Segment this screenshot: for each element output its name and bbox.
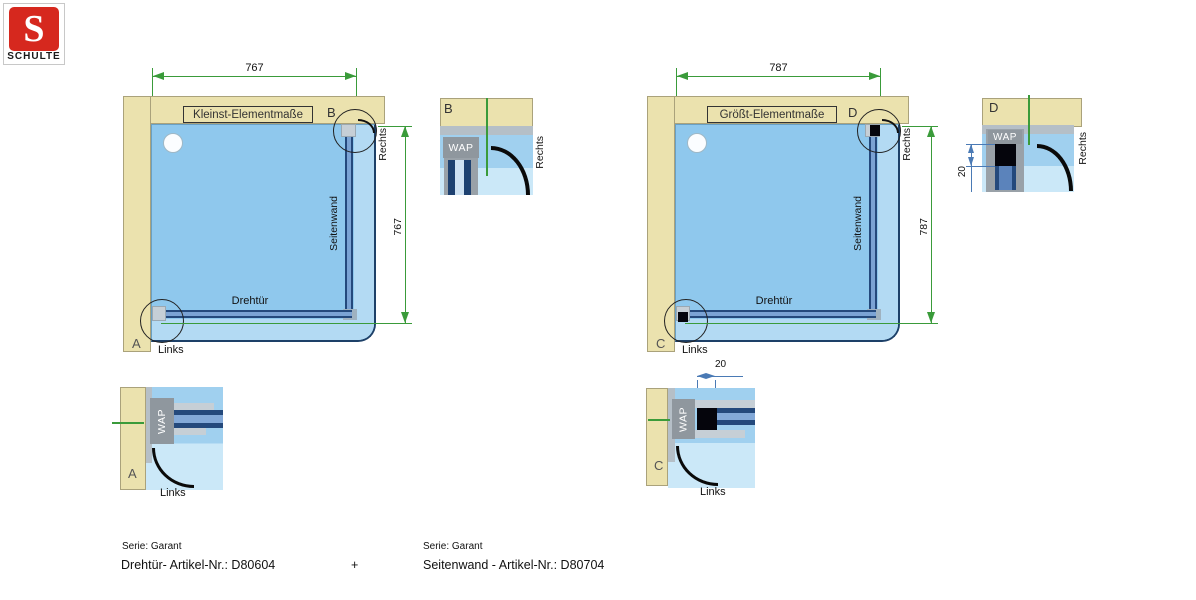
seitenwand-profile bbox=[345, 127, 353, 319]
dimension-line bbox=[405, 126, 406, 323]
rechts-label: Rechts bbox=[1077, 132, 1089, 165]
dimension-value-right: 787 bbox=[918, 218, 930, 236]
wap-label: WAP bbox=[443, 137, 479, 158]
arrow-down-icon bbox=[968, 157, 974, 166]
serie-label-right: Serie: Garant bbox=[423, 541, 482, 552]
reference-line bbox=[648, 419, 670, 421]
schulte-logo: S SCHULTE bbox=[3, 3, 65, 65]
logo-red-square: S bbox=[9, 7, 59, 51]
logo-brand-text: SCHULTE bbox=[4, 51, 64, 62]
glass-profile bbox=[464, 160, 471, 195]
serie-label-left: Serie: Garant bbox=[122, 541, 181, 552]
wap-label: WAP bbox=[672, 399, 695, 439]
wap-label: WAP bbox=[988, 130, 1022, 144]
glass-profile bbox=[995, 166, 1016, 190]
arrow-down-icon bbox=[401, 312, 409, 323]
detail-letter-c: C bbox=[654, 458, 663, 473]
dimension-line bbox=[677, 76, 880, 77]
ext-line bbox=[685, 323, 938, 324]
marker-letter-d: D bbox=[848, 105, 857, 120]
marker-letter-a: A bbox=[132, 336, 141, 351]
detail-letter-d: D bbox=[989, 100, 998, 115]
links-label: Links bbox=[700, 486, 726, 498]
dimension-value-top: 787 bbox=[677, 62, 880, 74]
rechts-label: Rechts bbox=[377, 128, 389, 161]
drain-circle bbox=[163, 133, 183, 153]
rechts-label: Rechts bbox=[534, 136, 546, 169]
detail-letter-a: A bbox=[128, 466, 137, 481]
diagram-title: Kleinst-Elementmaße bbox=[183, 106, 313, 123]
diagram-title: Größt-Elementmaße bbox=[707, 106, 837, 123]
wap-label: WAP bbox=[150, 398, 174, 444]
dimension-value-top: 767 bbox=[153, 62, 356, 74]
door-label: Drehtür bbox=[724, 295, 824, 307]
anchor-block-20mm bbox=[697, 408, 717, 430]
detail-circle-a bbox=[140, 299, 184, 343]
glass-gap bbox=[455, 160, 464, 195]
detail-circle-b bbox=[333, 109, 377, 153]
door-label: Drehtür bbox=[200, 295, 300, 307]
arrow-up-icon bbox=[927, 126, 935, 137]
article-number-sidewall: Seitenwand - Artikel-Nr.: D80704 bbox=[423, 558, 604, 572]
drain-circle bbox=[687, 133, 707, 153]
dimension-line bbox=[153, 76, 356, 77]
tray-highlight bbox=[878, 125, 900, 342]
article-number-door: Drehtür- Artikel-Nr.: D80604 bbox=[121, 558, 275, 572]
arrow-down-icon bbox=[927, 312, 935, 323]
glass-profile bbox=[448, 160, 455, 195]
reference-line bbox=[112, 422, 144, 424]
anchor-block-20mm bbox=[995, 144, 1016, 166]
detail-letter-b: B bbox=[444, 101, 453, 116]
detail-circle-c bbox=[664, 299, 708, 343]
reference-line bbox=[486, 98, 488, 176]
reference-line bbox=[1028, 95, 1030, 145]
side-wall-label: Seitenwand bbox=[852, 196, 864, 251]
tray-highlight bbox=[354, 125, 376, 342]
dimension-value-20: 20 bbox=[715, 359, 726, 370]
clamp-bottom bbox=[695, 430, 745, 438]
dimension-value-right: 767 bbox=[392, 218, 404, 236]
drehtuer-profile bbox=[158, 310, 352, 318]
marker-letter-b: B bbox=[327, 105, 336, 120]
plus-sign: + bbox=[351, 558, 358, 572]
drehtuer-profile bbox=[682, 310, 876, 318]
marker-letter-c: C bbox=[656, 336, 665, 351]
links-label: Links bbox=[160, 487, 186, 499]
arrow-right-icon bbox=[706, 373, 715, 379]
links-label: Links bbox=[682, 344, 708, 356]
arrow-up-icon bbox=[401, 126, 409, 137]
ext-line bbox=[161, 323, 412, 324]
rechts-label: Rechts bbox=[901, 128, 913, 161]
logo-s-glyph: S bbox=[23, 10, 44, 48]
arrow-up-icon bbox=[968, 144, 974, 153]
arrow-left-icon bbox=[697, 373, 706, 379]
side-wall-label: Seitenwand bbox=[328, 196, 340, 251]
links-label: Links bbox=[158, 344, 184, 356]
dimension-line bbox=[931, 126, 932, 323]
seitenwand-profile bbox=[869, 127, 877, 319]
detail-circle-d bbox=[857, 109, 901, 153]
dimension-value-20: 20 bbox=[957, 166, 968, 177]
glass-profile bbox=[717, 408, 755, 425]
clamp-top bbox=[695, 400, 755, 408]
